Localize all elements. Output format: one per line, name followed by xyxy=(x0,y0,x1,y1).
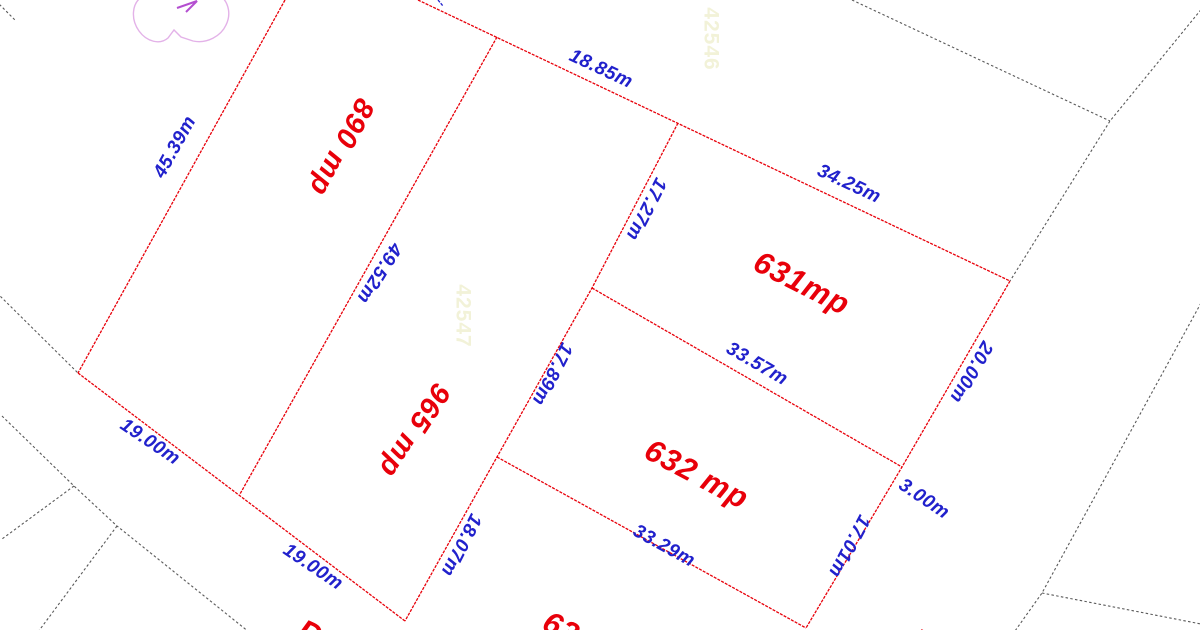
parcel-lines-layer xyxy=(0,0,1200,630)
boundary-road-front xyxy=(78,373,405,621)
context-line-northeast xyxy=(1010,6,1200,281)
context-line-road-branch-a xyxy=(2,486,74,539)
divider-631-632 xyxy=(592,288,902,467)
context-line-road-lower xyxy=(2,416,249,630)
context-line-east xyxy=(1015,303,1200,630)
context-line-southeast-branch xyxy=(1042,593,1200,624)
clipped-dimension-fragment xyxy=(438,0,443,6)
boundary-west-890 xyxy=(78,0,285,373)
cadastral-plan-canvas: 42546 42547 xyxy=(0,0,1200,630)
revision-cloud-shape xyxy=(133,0,228,42)
context-line-road-branch-b xyxy=(38,526,117,630)
context-line-north xyxy=(852,0,1110,121)
context-line-topleft-corner xyxy=(0,1,16,21)
boundary-top xyxy=(418,0,1010,281)
context-line-road-upper xyxy=(0,293,78,373)
